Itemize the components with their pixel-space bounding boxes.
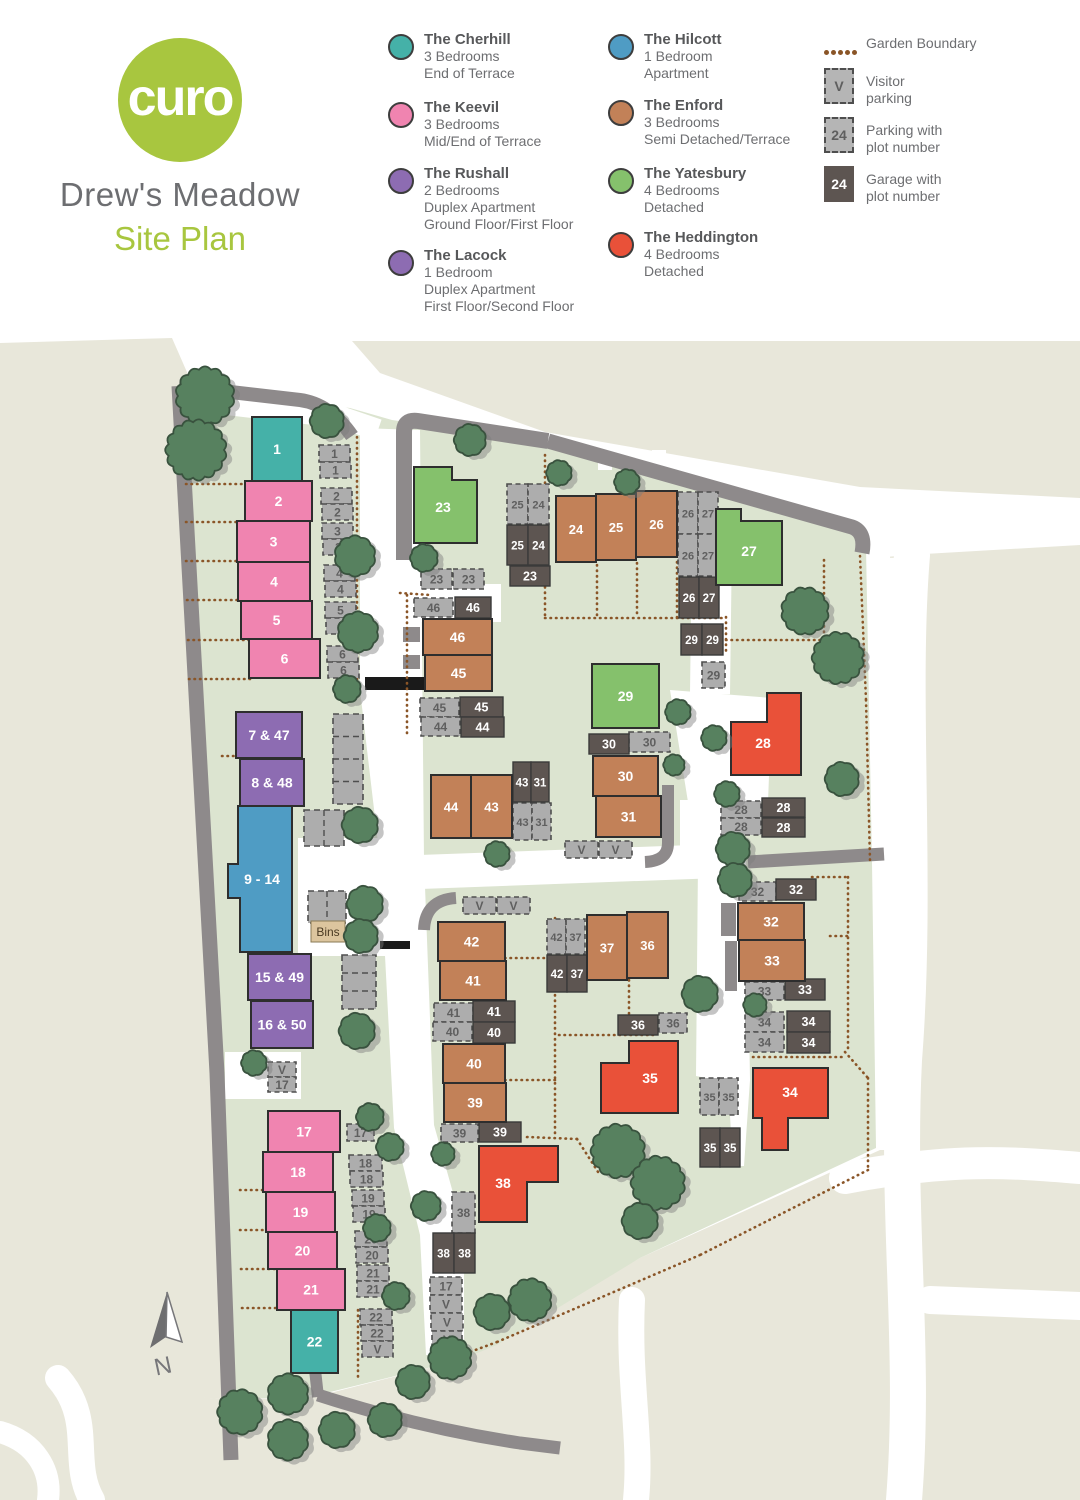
- plot-label: 45: [451, 665, 467, 681]
- parking-label: 45: [433, 701, 447, 715]
- tree-icon: [431, 1142, 454, 1165]
- tree-icon: [396, 1365, 430, 1399]
- site-plan-page: { "header": { "logo_text": "curo", "titl…: [0, 0, 1080, 1500]
- tree-icon: [241, 1050, 266, 1076]
- parking-label: 30: [643, 736, 657, 750]
- tree-icon: [344, 919, 378, 953]
- parking-label: 22: [369, 1311, 383, 1325]
- plot-label: 31: [621, 809, 637, 825]
- plot-label: 23: [435, 499, 451, 515]
- garage-label: 30: [602, 738, 616, 752]
- plot-label: 46: [450, 629, 466, 645]
- footpath: [902, 555, 912, 1500]
- footpath: [930, 1300, 1080, 1306]
- plot-label: 5: [273, 612, 281, 628]
- parking-label: 44: [434, 720, 448, 734]
- garage-label: 24: [532, 541, 545, 553]
- plot-label: 19: [293, 1204, 309, 1220]
- plot-label: 43: [484, 800, 498, 815]
- plot-label: 22: [307, 1334, 323, 1350]
- plot-label: 4: [270, 574, 278, 590]
- parking-label: 25: [511, 500, 523, 512]
- tree-icon: [782, 588, 829, 635]
- plot-label: 18: [290, 1164, 306, 1180]
- plot-label: 42: [464, 934, 480, 950]
- tree-icon: [484, 841, 509, 867]
- garage-label: 33: [798, 983, 812, 997]
- parking-label: 28: [734, 820, 748, 834]
- tree-icon: [474, 1294, 510, 1330]
- parking-label: 3: [334, 525, 341, 539]
- pavement-stub: [725, 941, 737, 991]
- parking-label: 2: [334, 506, 341, 520]
- parking-label: 1: [332, 464, 339, 478]
- retaining-wall: [365, 677, 427, 690]
- plot-label: 15 & 49: [255, 969, 304, 985]
- garage-label: 25: [511, 541, 524, 553]
- plot-label: 28: [755, 735, 771, 751]
- plot-label: 32: [763, 914, 779, 930]
- tree-icon: [339, 1013, 375, 1049]
- plot-label: 8 & 48: [251, 775, 292, 791]
- tree-icon: [333, 675, 361, 703]
- tree-icon: [356, 1103, 384, 1131]
- tree-icon: [825, 762, 859, 796]
- plot-label: 37: [600, 941, 614, 956]
- garage-label: 40: [487, 1026, 501, 1040]
- tree-icon: [363, 1214, 391, 1242]
- tree-icon: [347, 886, 383, 922]
- garage-label: 34: [802, 1036, 816, 1050]
- parking-label: 37: [569, 932, 581, 944]
- parking-label: 39: [453, 1127, 467, 1141]
- parking-label: 1: [331, 447, 338, 461]
- parking-label: 18: [359, 1157, 373, 1171]
- tree-icon: [268, 1373, 308, 1414]
- pavement-stub: [403, 655, 420, 669]
- plot-label: 39: [467, 1095, 483, 1111]
- tree-icon: [310, 404, 344, 438]
- plot-label: 26: [649, 517, 663, 532]
- tree-icon: [714, 781, 739, 807]
- plot-label: 44: [444, 800, 459, 815]
- tree-icon: [508, 1278, 551, 1321]
- tree-icon: [376, 1133, 404, 1161]
- parking-label: 27: [702, 509, 714, 521]
- tree-icon: [319, 1412, 355, 1448]
- plot-label: 3: [270, 534, 278, 550]
- parking-label: 4: [337, 583, 344, 597]
- parking-label: 26: [682, 551, 694, 563]
- parking-label: V: [509, 899, 517, 913]
- tree-icon: [622, 1203, 658, 1239]
- plot-label: 16 & 50: [257, 1017, 306, 1033]
- parking-label: 35: [722, 1092, 734, 1104]
- pavement: [748, 854, 884, 862]
- parking-label: 6: [339, 648, 346, 662]
- parking-label: V: [611, 843, 619, 857]
- plot-label: 2: [275, 493, 283, 509]
- plot-label: 33: [764, 953, 780, 969]
- parking-label: 24: [532, 500, 545, 512]
- tree-icon: [716, 832, 750, 866]
- plot-label: 24: [569, 522, 584, 537]
- garage-label: 28: [777, 821, 791, 835]
- tree-icon: [342, 807, 378, 843]
- parking-label: V: [442, 1298, 450, 1312]
- parking-label: 38: [457, 1206, 471, 1220]
- parking-label: 46: [427, 601, 441, 615]
- plot-label: 40: [466, 1056, 482, 1072]
- garage-label: 38: [437, 1249, 450, 1261]
- parking-label: V: [278, 1063, 286, 1077]
- plot-label: 38: [495, 1175, 511, 1191]
- parking-label: 26: [682, 509, 694, 521]
- parking-label: 34: [758, 1036, 772, 1050]
- tree-icon: [410, 544, 438, 572]
- garage-label: 34: [802, 1015, 816, 1029]
- tree-icon: [743, 993, 766, 1016]
- tree-icon: [718, 863, 752, 897]
- garage-label: 38: [458, 1249, 471, 1261]
- tree-icon: [454, 424, 486, 456]
- garage-label: 32: [789, 883, 803, 897]
- garage-label: 37: [571, 969, 584, 981]
- garage-label: 31: [534, 778, 547, 790]
- garage-label: 39: [493, 1126, 507, 1140]
- parking-label: V: [443, 1316, 451, 1330]
- plot-label: 29: [618, 688, 634, 704]
- garage-label: 28: [777, 801, 791, 815]
- plot-label: 9 - 14: [244, 871, 280, 887]
- tree-icon: [682, 976, 718, 1012]
- garage-label: 45: [475, 701, 489, 715]
- footpath: [631, 1300, 637, 1500]
- parking-label: 18: [360, 1173, 374, 1187]
- garage-label: 44: [476, 721, 490, 735]
- plot-label: 17: [296, 1124, 312, 1140]
- parking-label: 31: [535, 817, 547, 829]
- parking-label: 36: [666, 1017, 680, 1031]
- plot-label: 6: [281, 651, 289, 667]
- pavement-stub: [721, 903, 736, 936]
- garage-label: 35: [724, 1143, 737, 1155]
- parking-label: 20: [365, 1249, 379, 1263]
- plot-label: 30: [618, 768, 634, 784]
- bins-label: Bins: [316, 925, 339, 939]
- plot-label: 1: [273, 441, 281, 457]
- parking-label: 23: [462, 573, 476, 587]
- plot-label: 7 & 47: [248, 727, 289, 743]
- tree-icon: [411, 1191, 441, 1221]
- retaining-wall: [380, 941, 410, 949]
- tree-icon: [546, 460, 571, 486]
- garage-label: 43: [516, 778, 529, 790]
- tree-icon: [614, 469, 639, 495]
- parking-label: 41: [447, 1006, 461, 1020]
- parking-bay-area: [342, 955, 376, 1009]
- parking-label: 42: [550, 932, 562, 944]
- plot-label: 20: [295, 1243, 311, 1259]
- plot-label: 41: [465, 973, 481, 989]
- parking-label: 21: [366, 1283, 380, 1297]
- garage-label: 36: [631, 1019, 645, 1033]
- tree-icon: [701, 725, 726, 751]
- tree-icon: [268, 1419, 308, 1460]
- garage-label: 42: [551, 969, 564, 981]
- road-surface: [884, 558, 892, 1148]
- parking-label: 5: [337, 604, 344, 618]
- parking-label: 21: [366, 1267, 380, 1281]
- parking-label: 22: [370, 1327, 384, 1341]
- parking-label: 29: [707, 669, 721, 683]
- garage-label: 35: [704, 1143, 717, 1155]
- parking-label: 40: [446, 1025, 460, 1039]
- tree-icon: [176, 366, 234, 425]
- parking-label: 2: [333, 490, 340, 504]
- garage-label: 29: [706, 635, 719, 647]
- plot-label: 35: [642, 1070, 658, 1086]
- tree-icon: [665, 699, 690, 725]
- plot-label: 21: [303, 1282, 319, 1298]
- site-plan-map: 1122334455662323464544433125242627262729…: [0, 0, 1080, 1500]
- garage-label: 26: [683, 593, 696, 605]
- garage-label: 23: [523, 570, 537, 584]
- plot-label: 27: [741, 543, 757, 559]
- tree-icon: [428, 1336, 471, 1379]
- parking-label: V: [577, 843, 585, 857]
- plot-label: 34: [782, 1084, 798, 1100]
- parking-label: 17: [275, 1078, 289, 1092]
- parking-label: 27: [702, 551, 714, 563]
- parking-label: 43: [516, 817, 528, 829]
- tree-icon: [217, 1389, 262, 1434]
- tree-icon: [382, 1282, 410, 1310]
- footpath: [845, 1163, 1080, 1178]
- parking-label: 35: [703, 1092, 715, 1104]
- tree-icon: [663, 754, 684, 775]
- garage-label: 29: [685, 635, 698, 647]
- footpath: [862, 524, 1080, 540]
- plot-label: 36: [640, 938, 654, 953]
- parking-label: V: [475, 899, 483, 913]
- tree-icon: [368, 1403, 402, 1437]
- parking-label: 19: [361, 1192, 375, 1206]
- parking-label: V: [373, 1343, 381, 1357]
- garage-label: 27: [703, 593, 716, 605]
- tree-icon: [338, 611, 378, 652]
- garage-label: 41: [487, 1005, 501, 1019]
- garage-label: 46: [466, 601, 480, 615]
- parking-label: 17: [439, 1280, 453, 1294]
- plot-label: 25: [609, 520, 623, 535]
- pavement-stub: [403, 627, 420, 642]
- tree-icon: [335, 535, 375, 576]
